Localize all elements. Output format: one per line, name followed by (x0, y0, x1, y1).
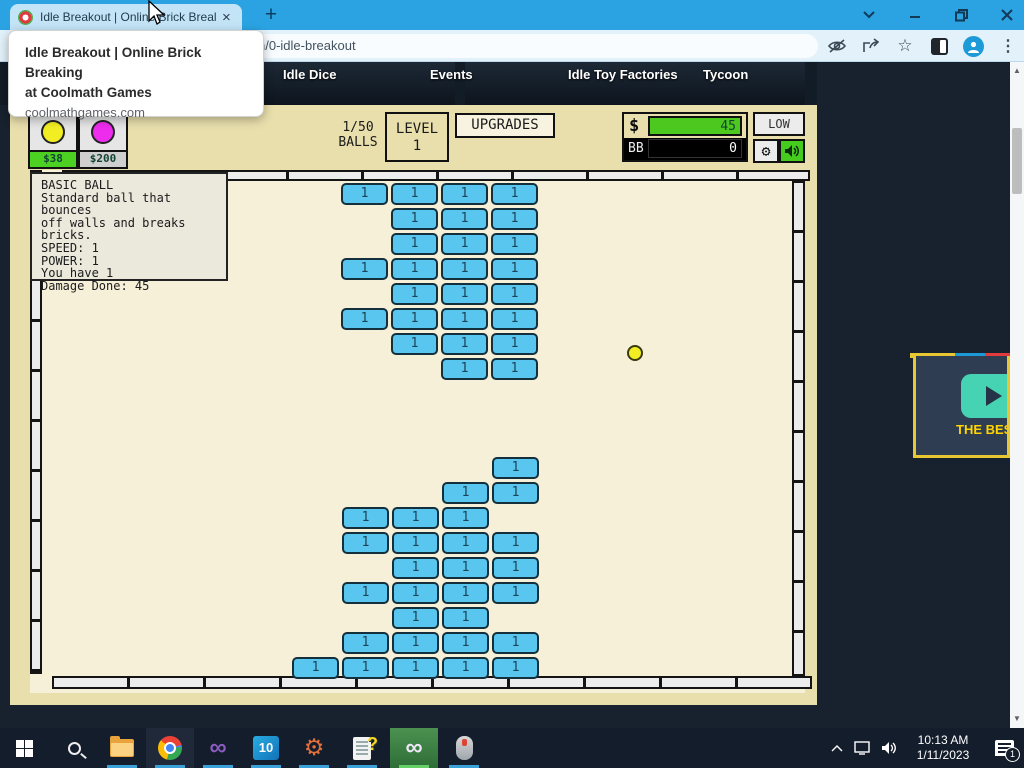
brick[interactable]: 1 (392, 607, 439, 629)
brick[interactable]: 1 (442, 657, 489, 679)
brick[interactable]: 1 (392, 582, 439, 604)
brick[interactable]: 1 (391, 308, 438, 330)
brick[interactable]: 1 (391, 333, 438, 355)
brick[interactable]: 1 (441, 183, 488, 205)
brick[interactable]: 1 (342, 532, 389, 554)
brick[interactable]: 1 (341, 183, 388, 205)
tab-tooltip: Idle Breakout | Online Brick Breaking at… (8, 30, 264, 117)
brick[interactable]: 1 (341, 308, 388, 330)
brick[interactable]: 1 (491, 183, 538, 205)
brick[interactable]: 1 (392, 532, 439, 554)
brick[interactable]: 1 (392, 657, 439, 679)
brick[interactable]: 1 (391, 183, 438, 205)
brick[interactable]: 1 (441, 258, 488, 280)
brick[interactable]: 1 (442, 582, 489, 604)
brick[interactable]: 1 (391, 283, 438, 305)
brick[interactable]: 1 (442, 507, 489, 529)
brick[interactable]: 1 (441, 333, 488, 355)
brick[interactable]: 1 (342, 632, 389, 654)
brick[interactable]: 1 (492, 557, 539, 579)
desktop-screen: Idle Breakout | Online Brick Breal × + n… (0, 0, 1024, 768)
brick[interactable]: 1 (492, 457, 539, 479)
brick[interactable]: 1 (491, 258, 538, 280)
brick[interactable]: 1 (492, 482, 539, 504)
brick[interactable]: 1 (491, 333, 538, 355)
brick[interactable]: 1 (442, 482, 489, 504)
brick[interactable]: 1 (442, 632, 489, 654)
brick[interactable]: 1 (292, 657, 339, 679)
brick[interactable]: 1 (492, 582, 539, 604)
brick[interactable]: 1 (442, 557, 489, 579)
game-ball (627, 345, 643, 361)
brick[interactable]: 1 (441, 208, 488, 230)
brick[interactable]: 1 (491, 208, 538, 230)
brick[interactable]: 1 (491, 283, 538, 305)
brick[interactable]: 1 (391, 258, 438, 280)
brick[interactable]: 1 (491, 308, 538, 330)
brick[interactable]: 1 (492, 632, 539, 654)
brick[interactable]: 1 (441, 358, 488, 380)
brick[interactable]: 1 (441, 233, 488, 255)
brick[interactable]: 1 (491, 233, 538, 255)
brick[interactable]: 1 (492, 657, 539, 679)
brick[interactable]: 1 (442, 607, 489, 629)
brick[interactable]: 1 (391, 208, 438, 230)
brick[interactable]: 1 (342, 507, 389, 529)
brick[interactable]: 1 (441, 308, 488, 330)
brick[interactable]: 1 (491, 358, 538, 380)
brick[interactable]: 1 (442, 532, 489, 554)
brick[interactable]: 1 (492, 532, 539, 554)
brick[interactable]: 1 (342, 657, 389, 679)
brick[interactable]: 1 (392, 557, 439, 579)
brick[interactable]: 1 (392, 632, 439, 654)
mouse-cursor-icon (145, 0, 165, 33)
brick[interactable]: 1 (342, 582, 389, 604)
brick[interactable]: 1 (341, 258, 388, 280)
brick[interactable]: 1 (392, 507, 439, 529)
brick[interactable]: 1 (441, 283, 488, 305)
ball-info-tooltip: BASIC BALL Standard ball that bounces of… (30, 172, 228, 281)
brick[interactable]: 1 (391, 233, 438, 255)
